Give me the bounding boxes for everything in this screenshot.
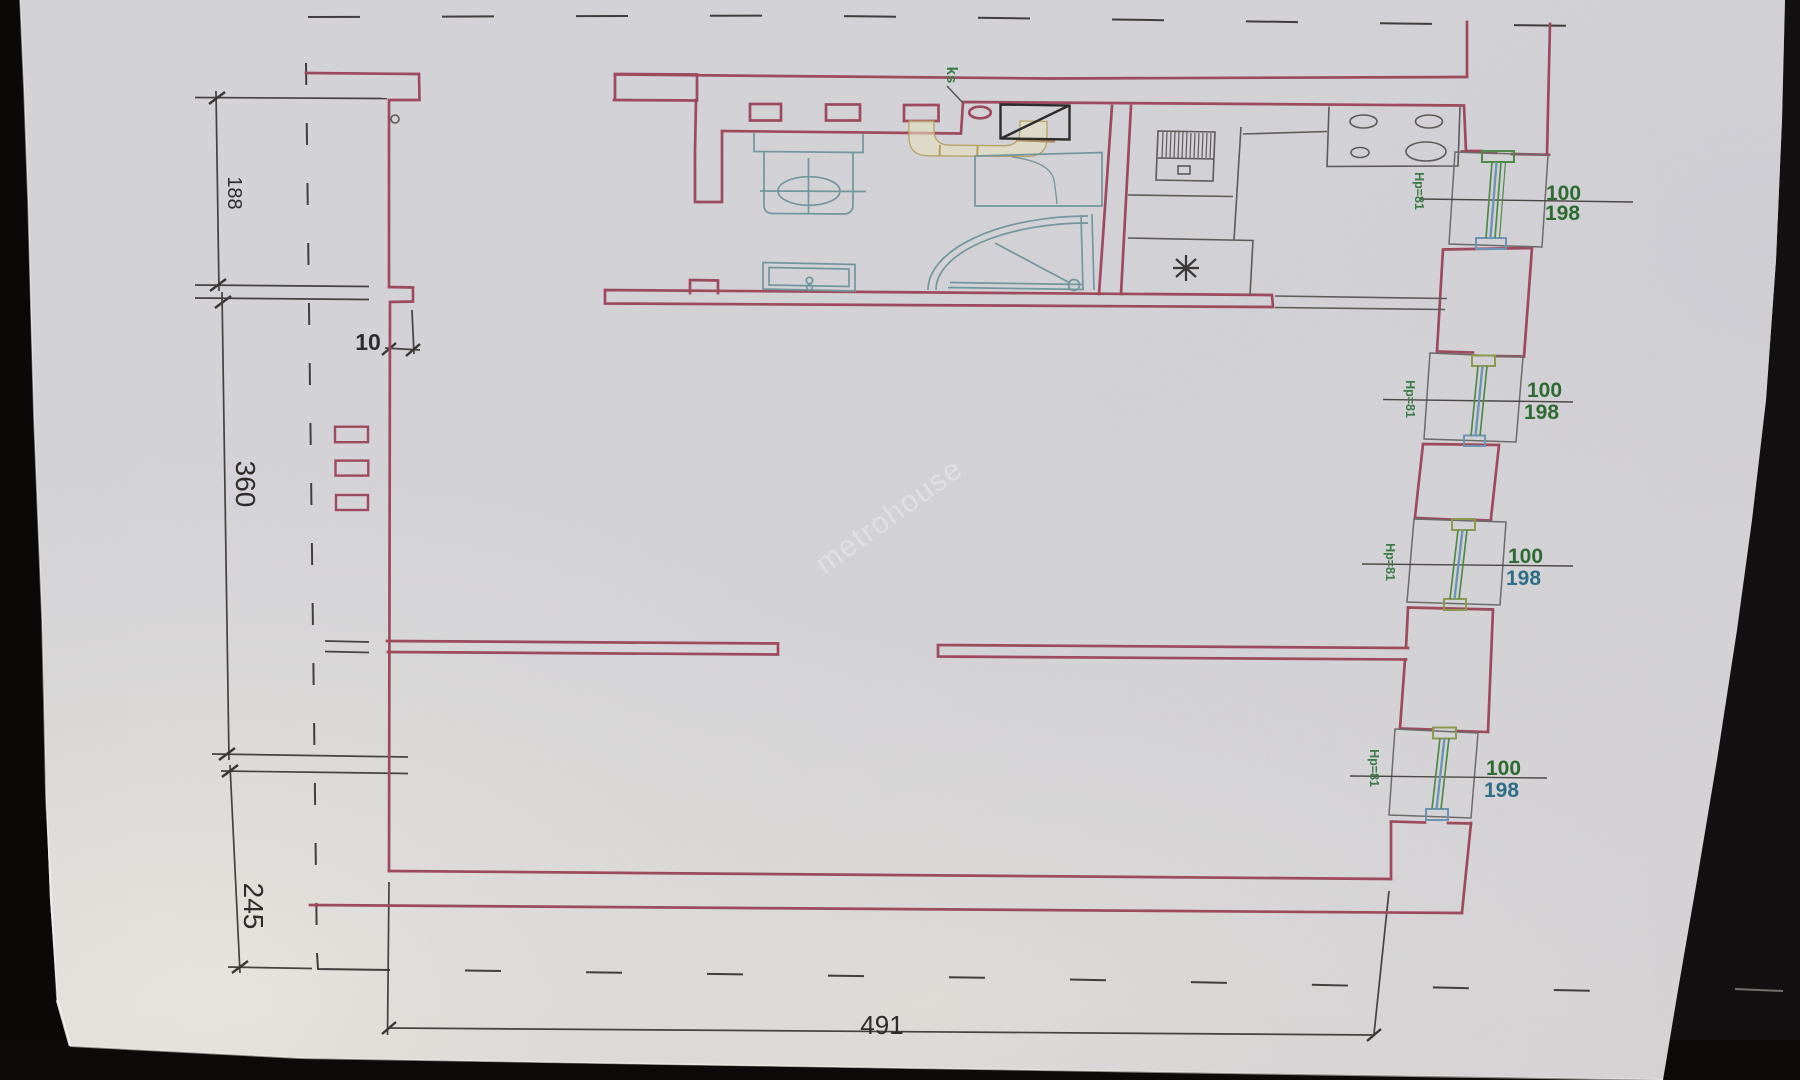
svg-text:Hp=81: Hp=81 bbox=[1367, 749, 1381, 787]
svg-text:ks: ks bbox=[943, 67, 960, 84]
svg-text:100: 100 bbox=[1508, 545, 1543, 568]
svg-text:360: 360 bbox=[230, 461, 261, 508]
svg-text:188: 188 bbox=[223, 176, 245, 209]
svg-text:Hp=81: Hp=81 bbox=[1412, 172, 1426, 210]
svg-text:100: 100 bbox=[1527, 379, 1562, 402]
svg-text:198: 198 bbox=[1506, 567, 1541, 590]
svg-text:Hp=81: Hp=81 bbox=[1403, 380, 1417, 418]
svg-text:10: 10 bbox=[355, 329, 381, 355]
svg-text:198: 198 bbox=[1524, 401, 1559, 424]
svg-text:245: 245 bbox=[238, 883, 269, 930]
svg-text:491: 491 bbox=[860, 1010, 903, 1040]
svg-text:100: 100 bbox=[1486, 757, 1521, 780]
svg-text:Hp=81: Hp=81 bbox=[1383, 543, 1397, 581]
svg-text:198: 198 bbox=[1545, 202, 1580, 225]
svg-text:198: 198 bbox=[1484, 779, 1519, 802]
